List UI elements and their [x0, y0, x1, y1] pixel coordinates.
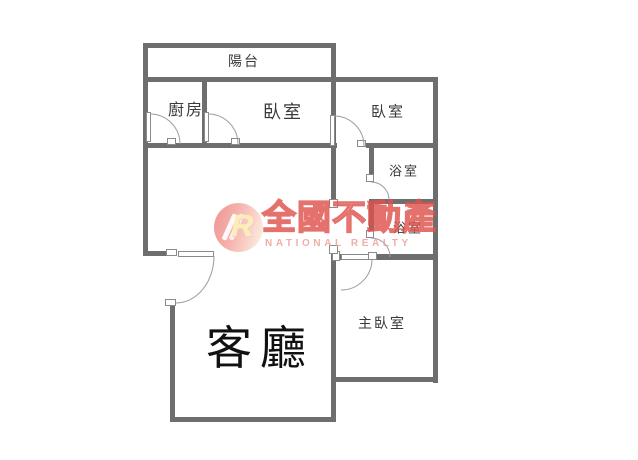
master-door-arc — [341, 259, 372, 290]
room-label-bedroom2: 臥室 — [371, 101, 405, 122]
entrance-door-arc — [176, 256, 214, 303]
room-label-kitchen: 廚房 — [168, 96, 204, 120]
brand-name-en: NATIONAL REALTY — [265, 238, 412, 249]
bedroom1-door-arc — [208, 114, 238, 144]
brand-name: 全國不動產 — [262, 201, 437, 235]
room-label-balcony: 陽台 — [228, 51, 260, 71]
floorplan-canvas: 陽台 廚房 臥室 臥室 浴室 浴室 主臥室 客廳 R 全國不動產 NATIONA… — [0, 0, 638, 460]
logo-letter: R — [231, 210, 253, 241]
room-label-master-bedroom: 主臥室 — [358, 313, 406, 333]
realty-logo-icon: R — [214, 203, 263, 252]
bedroom2-door-arc — [334, 116, 364, 146]
room-label-bedroom1: 臥室 — [263, 98, 303, 124]
realty-watermark: R 全國不動產 NATIONAL REALTY — [205, 200, 445, 256]
room-label-bathroom1: 浴室 — [389, 161, 419, 180]
room-label-living-room: 客廳 — [206, 312, 314, 378]
bathroom1-door-arc — [371, 182, 389, 200]
